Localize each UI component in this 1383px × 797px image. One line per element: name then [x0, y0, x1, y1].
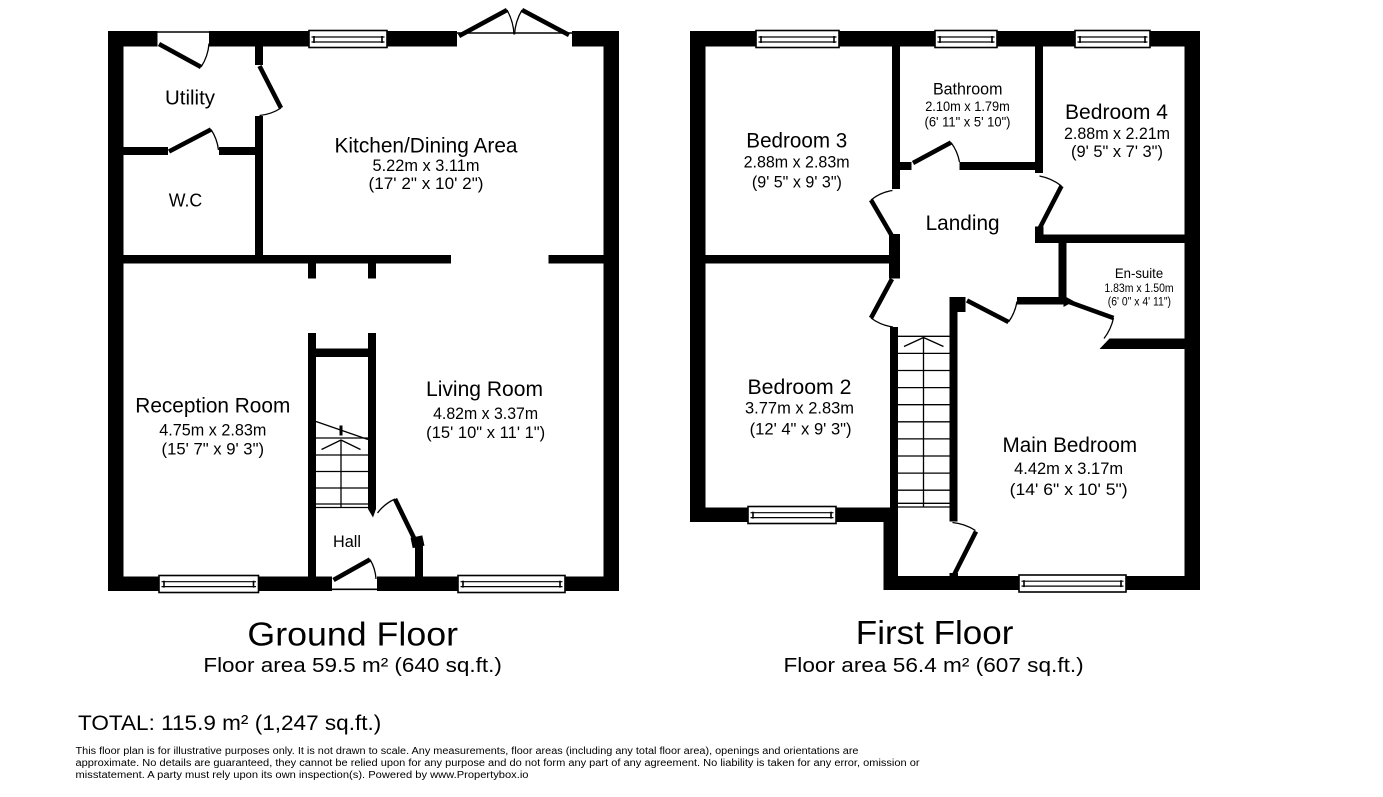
svg-text:(6' 0" x 4' 11"): (6' 0" x 4' 11") [1108, 296, 1171, 308]
svg-text:4.42m x 3.17m: 4.42m x 3.17m [1014, 460, 1123, 478]
svg-text:(12' 4" x 9' 3"): (12' 4" x 9' 3") [750, 421, 852, 439]
svg-text:Floor area 56.4 m² (607 sq.ft.: Floor area 56.4 m² (607 sq.ft.) [784, 655, 1084, 677]
svg-text:Kitchen/Dining Area: Kitchen/Dining Area [335, 135, 518, 158]
svg-text:Bedroom 3: Bedroom 3 [746, 129, 847, 152]
svg-text:(17' 2" x 10' 2"): (17' 2" x 10' 2") [369, 175, 484, 193]
svg-text:1.83m x 1.50m: 1.83m x 1.50m [1104, 283, 1173, 295]
svg-text:(9' 5" x 9' 3"): (9' 5" x 9' 3") [752, 173, 842, 191]
svg-text:(15' 10" x 11' 1"): (15' 10" x 11' 1") [426, 424, 545, 442]
svg-text:Hall: Hall [333, 533, 361, 551]
svg-text:5.22m x 3.11m: 5.22m x 3.11m [373, 157, 480, 175]
svg-text:First Floor: First Floor [856, 615, 1014, 652]
svg-text:misstatement. A party must rel: misstatement. A party must rely upon its… [76, 770, 529, 781]
svg-text:4.82m x 3.37m: 4.82m x 3.37m [433, 405, 538, 423]
svg-text:TOTAL: 115.9 m² (1,247 sq.ft.): TOTAL: 115.9 m² (1,247 sq.ft.) [78, 712, 381, 735]
svg-text:Bedroom 2: Bedroom 2 [748, 376, 852, 399]
svg-text:Living Room: Living Room [426, 378, 543, 401]
svg-text:W.C: W.C [169, 190, 203, 211]
svg-text:2.88m x 2.21m: 2.88m x 2.21m [1064, 125, 1170, 143]
svg-text:Reception Room: Reception Room [135, 395, 290, 418]
svg-text:Utility: Utility [165, 86, 216, 109]
svg-text:approximate. No details are gu: approximate. No details are guaranteed, … [76, 758, 921, 769]
svg-text:Floor area 59.5 m² (640 sq.ft.: Floor area 59.5 m² (640 sq.ft.) [203, 655, 502, 677]
svg-text:2.88m x 2.83m: 2.88m x 2.83m [744, 154, 850, 172]
svg-text:(9' 5" x 7' 3"): (9' 5" x 7' 3") [1071, 143, 1163, 161]
svg-text:This floor plan is for illustr: This floor plan is for illustrative purp… [76, 746, 859, 757]
svg-text:En-suite: En-suite [1115, 265, 1164, 281]
svg-text:3.77m x 2.83m: 3.77m x 2.83m [745, 400, 854, 418]
svg-text:(15' 7" x 9' 3"): (15' 7" x 9' 3") [162, 441, 265, 459]
svg-text:Landing: Landing [926, 212, 1000, 235]
svg-text:(14' 6" x 10' 5"): (14' 6" x 10' 5") [1010, 481, 1128, 499]
svg-text:Bedroom 4: Bedroom 4 [1065, 101, 1168, 124]
svg-text:Ground Floor: Ground Floor [247, 617, 458, 654]
svg-text:Main Bedroom: Main Bedroom [1003, 434, 1138, 457]
svg-text:Bathroom: Bathroom [933, 80, 1003, 99]
svg-text:(6' 11" x 5' 10"): (6' 11" x 5' 10") [925, 113, 1011, 129]
svg-text:2.10m x 1.79m: 2.10m x 1.79m [925, 98, 1010, 114]
svg-text:4.75m x 2.83m: 4.75m x 2.83m [159, 422, 266, 440]
